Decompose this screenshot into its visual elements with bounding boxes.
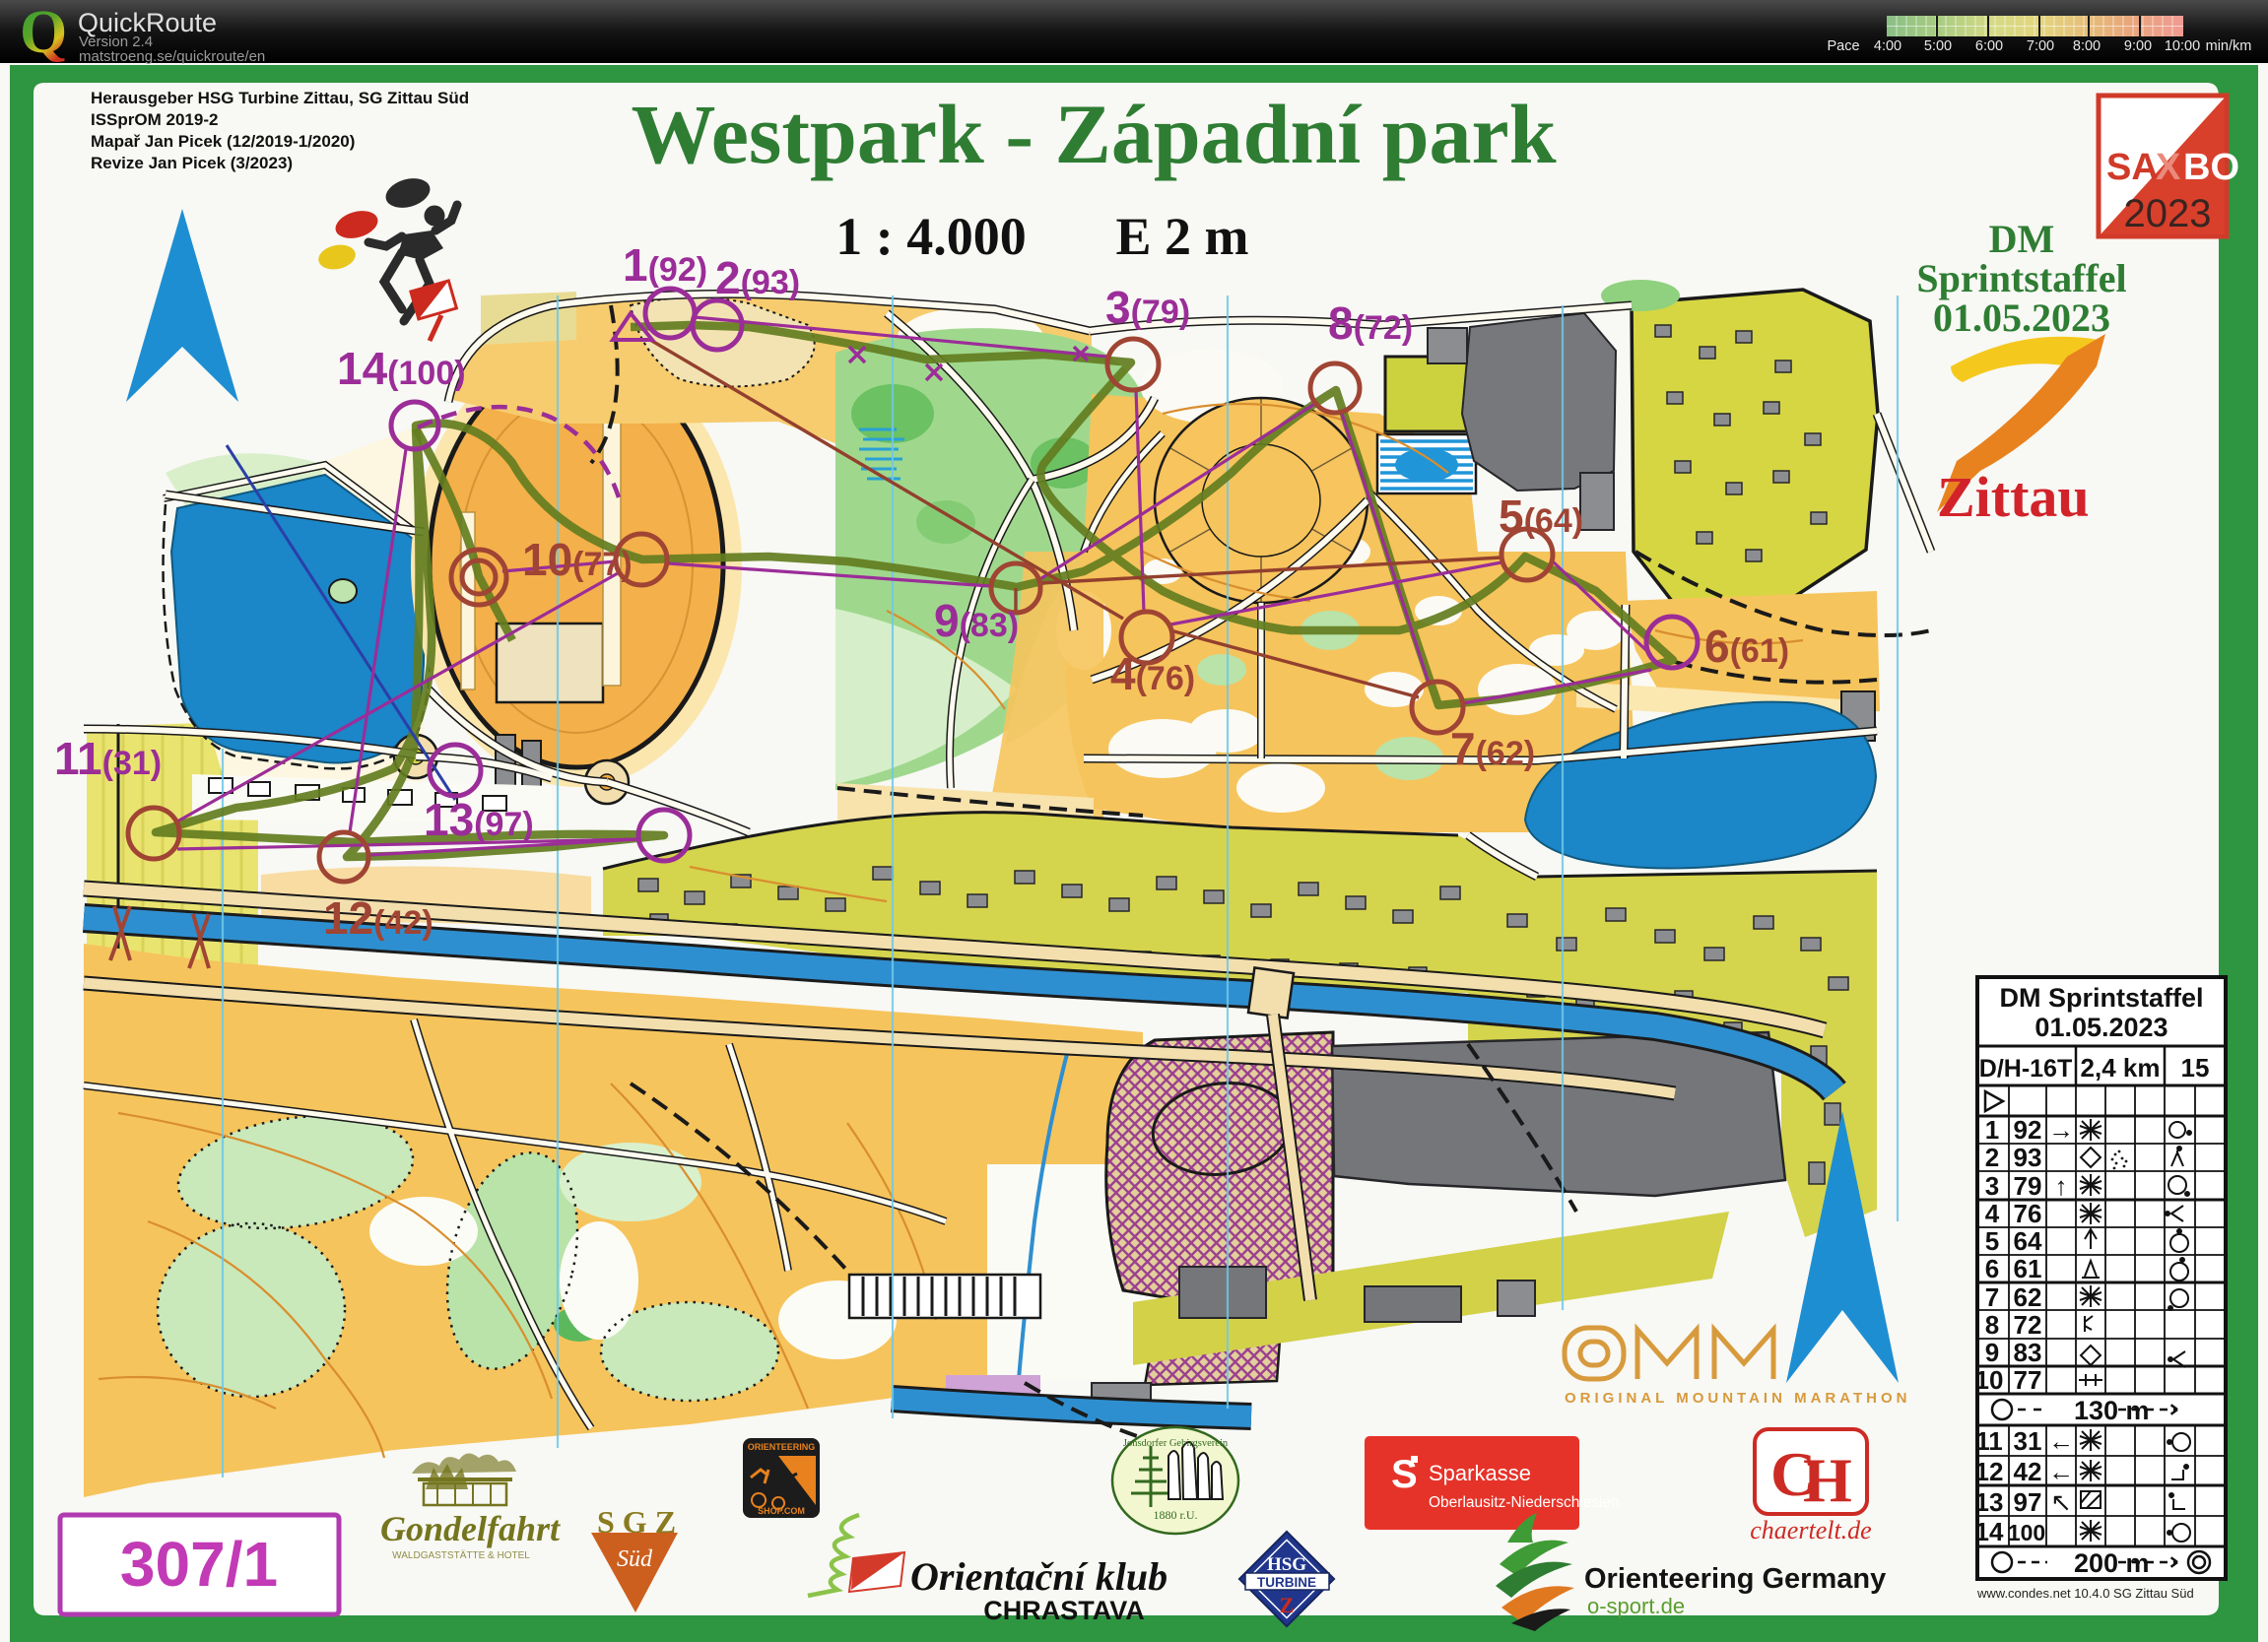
svg-text:Jonsdorfer Gebirgsverein: Jonsdorfer Gebirgsverein xyxy=(1123,1438,1229,1449)
svg-text:TURBINE: TURBINE xyxy=(1257,1575,1316,1590)
svg-text:Sparkasse: Sparkasse xyxy=(1429,1461,1531,1485)
svg-text:6:00: 6:00 xyxy=(1975,38,2003,54)
svg-text:CHRASTAVA: CHRASTAVA xyxy=(983,1596,1145,1625)
svg-text:76: 76 xyxy=(2014,1199,2042,1228)
svg-text:min/km: min/km xyxy=(2206,38,2252,54)
svg-text:5: 5 xyxy=(1985,1226,1999,1256)
svg-text:↑: ↑ xyxy=(2055,1171,2068,1201)
svg-text:11: 11 xyxy=(1975,1426,2003,1456)
svg-text:matstroeng.se/quickroute/en: matstroeng.se/quickroute/en xyxy=(79,48,265,65)
svg-text:31: 31 xyxy=(2014,1426,2042,1456)
svg-text:SA: SA xyxy=(2106,147,2159,188)
svg-text:3: 3 xyxy=(1985,1171,1999,1201)
svg-text:www.condes.net 10.4.0 SG Zitta: www.condes.net 10.4.0 SG Zittau Süd xyxy=(1976,1586,2194,1601)
svg-text:4: 4 xyxy=(1985,1199,2000,1228)
svg-text:Q: Q xyxy=(20,0,67,66)
svg-text:1: 1 xyxy=(1985,1115,1999,1145)
svg-text:chaertelt.de: chaertelt.de xyxy=(1750,1516,1871,1544)
svg-text:2,4 km: 2,4 km xyxy=(2081,1053,2161,1083)
svg-text:79: 79 xyxy=(2014,1171,2042,1201)
svg-text:9: 9 xyxy=(1985,1338,1999,1367)
svg-text:Mapař Jan Picek (12/2019-1/202: Mapař Jan Picek (12/2019-1/2020) xyxy=(91,132,355,151)
svg-text:H: H xyxy=(1803,1445,1852,1515)
svg-text:SHOP.COM: SHOP.COM xyxy=(758,1506,805,1516)
svg-text:WALDGASTSTÄTTE & HOTEL: WALDGASTSTÄTTE & HOTEL xyxy=(392,1549,530,1561)
svg-text:8:00: 8:00 xyxy=(2073,38,2101,54)
svg-text:Revize Jan Picek (3/2023): Revize Jan Picek (3/2023) xyxy=(91,154,293,172)
svg-text:ORIENTEERING: ORIENTEERING xyxy=(748,1442,816,1452)
svg-text:Süd: Süd xyxy=(617,1546,653,1572)
svg-text:15: 15 xyxy=(2181,1053,2210,1083)
svg-text:Gondelfahrt: Gondelfahrt xyxy=(380,1509,561,1548)
svg-text:93: 93 xyxy=(2014,1143,2042,1172)
svg-text:ORIGINAL MOUNTAIN MARATHON: ORIGINAL MOUNTAIN MARATHON xyxy=(1565,1390,1910,1407)
svg-text:Pace: Pace xyxy=(1827,38,1859,54)
svg-text:8: 8 xyxy=(1985,1310,1999,1340)
svg-text:D/H-16T: D/H-16T xyxy=(1979,1055,2072,1083)
svg-text:o-sport.de: o-sport.de xyxy=(1587,1594,1685,1618)
svg-text:10: 10 xyxy=(1975,1365,2004,1395)
svg-text:62: 62 xyxy=(2014,1282,2042,1312)
svg-text:DM Sprintstaffel: DM Sprintstaffel xyxy=(1999,983,2203,1013)
svg-text:X: X xyxy=(2156,147,2181,188)
svg-text:72: 72 xyxy=(2014,1310,2042,1340)
svg-text:130 m: 130 m xyxy=(2074,1396,2150,1425)
svg-text:HSG: HSG xyxy=(1267,1554,1306,1575)
svg-text:2: 2 xyxy=(1985,1143,1999,1172)
svg-text:200 m: 200 m xyxy=(2074,1548,2150,1578)
svg-text:Oberlausitz-Niederschlesien: Oberlausitz-Niederschlesien xyxy=(1429,1494,1620,1511)
svg-text:64: 64 xyxy=(2014,1226,2042,1256)
svg-text:Orientační klub: Orientační klub xyxy=(910,1554,1167,1599)
svg-text:BO: BO xyxy=(2183,147,2239,188)
svg-text:14: 14 xyxy=(1975,1517,2004,1546)
svg-text:307/1: 307/1 xyxy=(120,1529,278,1600)
svg-text:100: 100 xyxy=(2008,1520,2045,1545)
svg-text:ISSprOM 2019-2: ISSprOM 2019-2 xyxy=(91,110,218,129)
svg-text:Westpark - Západní park: Westpark - Západní park xyxy=(631,87,1556,181)
svg-text:61: 61 xyxy=(2014,1254,2042,1283)
svg-text:→: → xyxy=(2048,1115,2074,1145)
svg-text:6: 6 xyxy=(1985,1254,1999,1283)
svg-text:Z: Z xyxy=(1280,1593,1295,1617)
svg-text:7: 7 xyxy=(1985,1282,1999,1312)
svg-text:Herausgeber HSG Turbine Zittau: Herausgeber HSG Turbine Zittau, SG Zitta… xyxy=(91,89,469,107)
svg-text:5:00: 5:00 xyxy=(1924,38,1952,54)
svg-text:97: 97 xyxy=(2014,1487,2042,1517)
svg-text:7:00: 7:00 xyxy=(2027,38,2054,54)
svg-text:Zittau: Zittau xyxy=(1937,465,2090,529)
svg-text:9:00: 9:00 xyxy=(2124,38,2152,54)
svg-text:13: 13 xyxy=(1975,1487,2004,1517)
svg-text:E 2 m: E 2 m xyxy=(1116,207,1249,266)
svg-text:←: ← xyxy=(2048,1457,2074,1486)
svg-text:Orienteering Germany: Orienteering Germany xyxy=(1584,1563,1886,1595)
svg-text:2023: 2023 xyxy=(2124,192,2212,235)
svg-text:12: 12 xyxy=(1975,1457,2004,1486)
svg-text:42: 42 xyxy=(2014,1457,2042,1486)
svg-text:83: 83 xyxy=(2014,1338,2042,1367)
svg-text:4:00: 4:00 xyxy=(1874,38,1901,54)
svg-text:01.05.2023: 01.05.2023 xyxy=(2035,1013,2168,1042)
svg-text:77: 77 xyxy=(2014,1365,2042,1395)
svg-text:1 : 4.000: 1 : 4.000 xyxy=(835,207,1026,266)
svg-text:10:00: 10:00 xyxy=(2165,38,2200,54)
svg-text:←: ← xyxy=(2048,1426,2074,1456)
svg-text:92: 92 xyxy=(2014,1115,2042,1145)
svg-text:01.05.2023: 01.05.2023 xyxy=(1933,296,2110,340)
svg-text:DM: DM xyxy=(1989,217,2055,261)
svg-text:1880 r.U.: 1880 r.U. xyxy=(1154,1508,1198,1522)
svg-text:Sprintstaffel: Sprintstaffel xyxy=(1916,256,2126,300)
svg-text:↖: ↖ xyxy=(2050,1487,2072,1517)
